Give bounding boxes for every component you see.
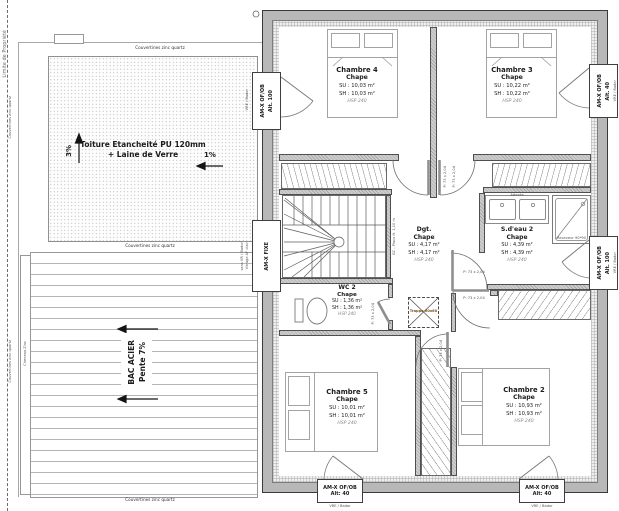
room-label-chambre2: Chambre 2 Chape SU : 10,93 m² SH : 10,93… [484,386,564,425]
window-alt-label: Alt: 40 [533,491,552,498]
shutter-note-right-top: VRE / Bador [611,68,619,114]
window-bottom-right: AM-X OF/OB Alt: 40 [519,479,565,503]
guardrail-label: GC - Placo H. 1,10 m [389,200,398,274]
window-alt-label: Alt. 100 [605,252,611,274]
slope-3pct-label: 3% [63,138,75,164]
coping-label-vertical-top: Couvertines zinc quartz [5,86,15,148]
corner-marker [253,11,259,17]
coping-label-bottom: Couvertines zinc quartz [78,497,222,502]
waiting-label: Attente [504,193,530,197]
coping-label-vertical-bottom: Couvertines zinc quartz [5,330,15,392]
room-label-degagement: Dgt. Chape SU : 4,17 m² SH : 4,17 m² HSP… [396,226,452,263]
coping-label-top: Couvertines zinc quartz [88,45,232,50]
toilet-tank [295,299,303,322]
staircase-treads [282,196,386,277]
window-type-label: AM-X FIXE [264,242,270,271]
door-label-sdeau-inner: P: 73 x 2,04 [456,270,492,274]
door-label-sdeau-outer: P: 73 x 2,04 [456,296,492,300]
room-label-sdeau2: S.d'eau 2 Chape SU : 4,39 m² SH : 4,39 m… [482,226,552,263]
shutter-note-bottom-left: VRE / Bador [325,504,355,508]
flat-roof-label-line1: Toiture Etancheité PU 120mm [58,140,228,149]
room-label-chambre5: Chambre 5 Chape SU : 10,01 m² SH : 10,01… [307,388,387,427]
attic-hatch-label: Trappe 60x60 [409,309,438,313]
bed-fold-ticks [333,57,551,66]
window-type-label: AM-X OF/OB [597,246,603,280]
window-type-label: AM-X OF/OB [597,74,603,108]
room-label-wc2: WC 2 Chape SU : 1,36 m² SH : 1,36 m² HSP… [322,285,372,317]
faucet [531,203,534,206]
room-label-chambre4: Chambre 4 Chape SU : 10,03 m² SH : 10,03… [317,66,397,105]
fixed-window-note: sans VR / Bador Vitrage AF clair [238,222,251,290]
steel-roof-label: BAC ACIER Pente 7% [121,333,152,391]
window-alt-label: Alt: 40 [331,491,350,498]
window-type-label: AM-X OF/OB [260,84,266,118]
gutter-label: Cheneau Zinc [19,322,30,384]
shutter-note-bottom-right: VRE / Bador [527,504,557,508]
window-bottom-left: AM-X OF/OB Alt: 40 [317,479,363,503]
slope-1pct-label: 1% [197,151,223,159]
faucet [500,203,503,206]
shower-tray-label: Receveur 90*90 [551,236,592,240]
coping-label-mid: Couvertines zinc quartz [78,243,222,248]
floor-plan-canvas: Limite de Propriété Couvertines zinc qua… [0,0,619,511]
door-label-chambre4: P: 73 x 2,04 [441,158,448,195]
window-alt-label: Alt. 100 [268,90,274,112]
window-left-mid: AM-X FIXE [252,220,281,292]
window-alt-label: Alt. 40 [605,82,611,101]
room-label-chambre3: Chambre 3 Chape SU : 10,22 m² SH : 10,22… [472,66,552,105]
door-label-chambre5: P: 73 x 2,04 [437,334,445,367]
door-label-chambre3: P: 73 x 2,04 [450,158,457,195]
window-left-top: AM-X OF/OB Alt. 100 [252,72,281,130]
shutter-note-right-mid: VRE / Bador [611,240,619,286]
door-label-wc2: P: 73 x 2,04 [369,299,377,329]
shutter-note-left-top: VRE / Bador [243,76,251,124]
